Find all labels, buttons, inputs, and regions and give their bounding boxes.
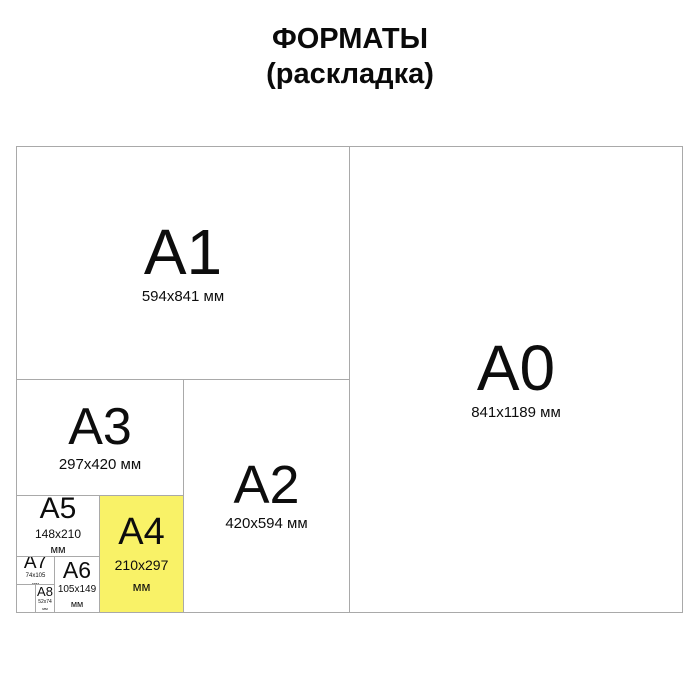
format-a0-size: 841x1189 мм bbox=[471, 404, 561, 423]
format-a6-size: 105x149 bbox=[58, 584, 96, 597]
format-a3-label: A3 bbox=[68, 401, 132, 453]
page: ФОРМАТЫ (раскладка) A0 841x1189 мм A1 59… bbox=[0, 0, 700, 700]
format-a2-box: A2 420x594 мм bbox=[183, 379, 349, 612]
format-a5-box: A5 148x210 мм bbox=[17, 495, 99, 556]
format-a4-box: A4 210x297 мм bbox=[99, 495, 183, 612]
formats-diagram: A0 841x1189 мм A1 594x841 мм A2 420x594 … bbox=[16, 146, 683, 613]
format-a4-label: A4 bbox=[118, 513, 164, 551]
format-a5-unit: мм bbox=[50, 544, 65, 556]
format-a5-size: 148x210 bbox=[35, 527, 81, 542]
format-a3-box: A3 297x420 мм bbox=[17, 379, 183, 495]
format-a4-unit: мм bbox=[133, 579, 151, 595]
format-a6-unit: мм bbox=[71, 599, 83, 610]
format-a7-label: A7 bbox=[24, 556, 47, 572]
format-a0-label: A0 bbox=[477, 336, 555, 400]
format-a3-size: 297x420 мм bbox=[59, 456, 141, 475]
format-a1-size: 594x841 мм bbox=[142, 288, 224, 307]
format-a5-label: A5 bbox=[40, 495, 77, 524]
format-a4-size: 210x297 bbox=[115, 557, 169, 575]
format-a7-box: A7 74x105 мм bbox=[17, 556, 54, 585]
page-title-line2: (раскладка) bbox=[0, 57, 700, 92]
format-a2-label: A2 bbox=[233, 458, 299, 512]
format-a1-label: A1 bbox=[144, 220, 222, 284]
format-a8-label: A8 bbox=[37, 585, 53, 598]
format-a6-label: A6 bbox=[63, 559, 91, 582]
format-a7-size: 74x105 bbox=[26, 573, 46, 581]
format-a0-box: A0 841x1189 мм bbox=[349, 147, 682, 612]
format-a8-box: A8 52x74 мм bbox=[35, 585, 54, 612]
format-a1-box: A1 594x841 мм bbox=[17, 147, 349, 379]
format-a6-box: A6 105x149 мм bbox=[54, 556, 99, 612]
format-a8-unit: мм bbox=[42, 607, 48, 612]
format-a2-size: 420x594 мм bbox=[225, 515, 307, 534]
page-title: ФОРМАТЫ (раскладка) bbox=[0, 22, 700, 92]
page-title-line1: ФОРМАТЫ bbox=[0, 22, 700, 57]
format-a8-size: 52x74 bbox=[38, 599, 52, 605]
